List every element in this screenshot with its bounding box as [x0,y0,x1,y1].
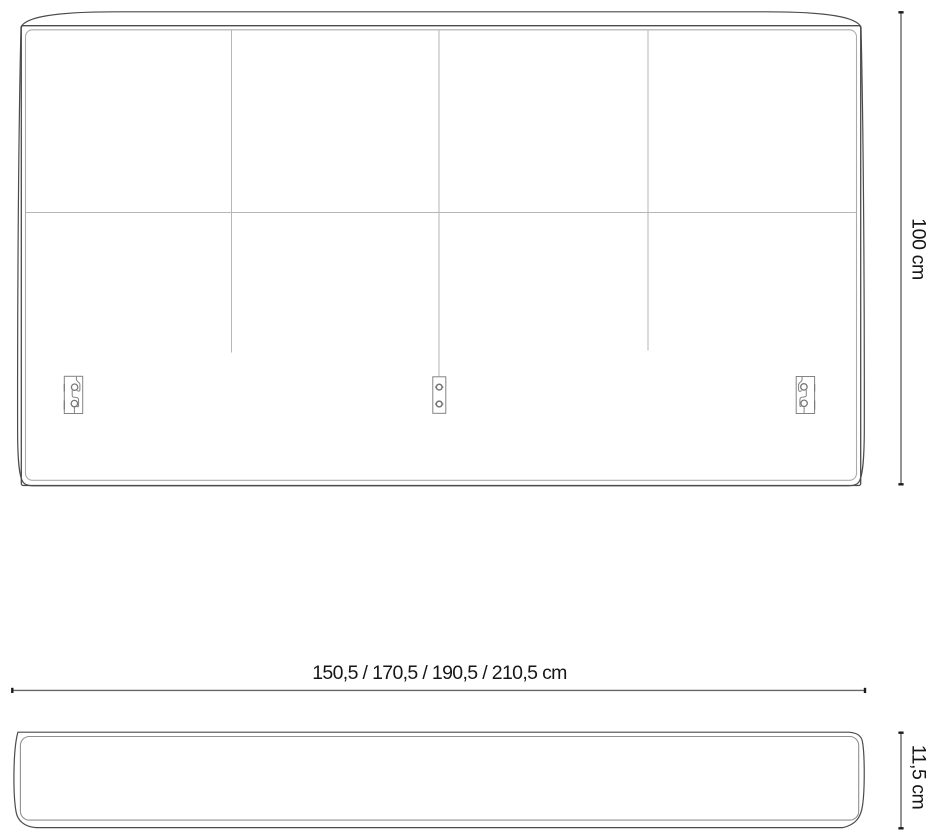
svg-text:150,5 / 170,5 / 190,5 / 210,5: 150,5 / 170,5 / 190,5 / 210,5 cm [312,662,567,684]
svg-text:100 cm: 100 cm [908,218,930,280]
svg-text:11,5 cm: 11,5 cm [908,745,930,809]
